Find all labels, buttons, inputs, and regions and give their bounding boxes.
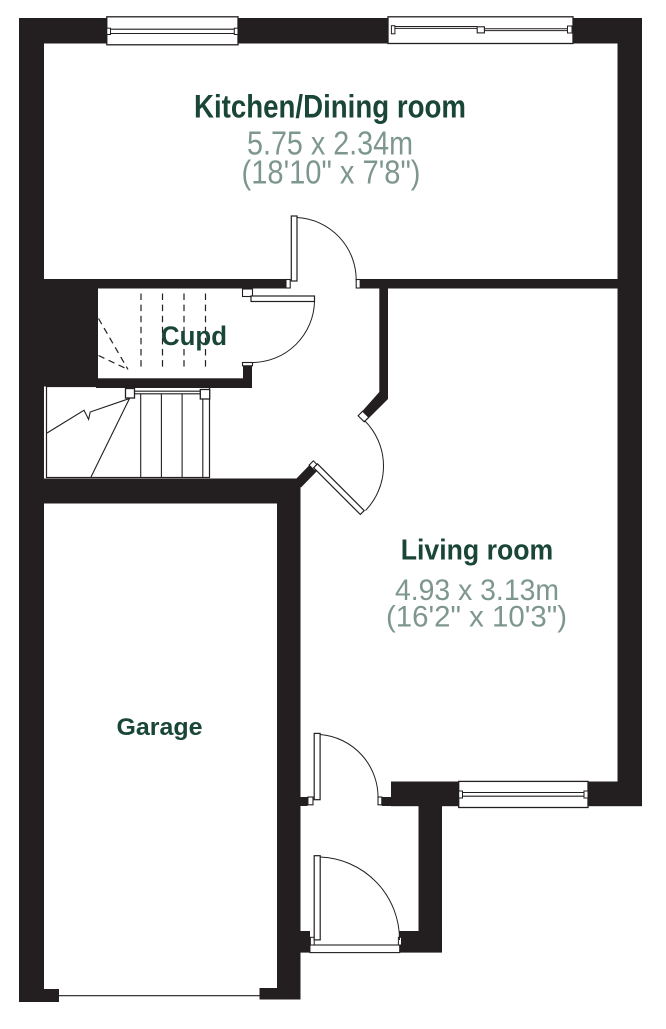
svg-text:Kitchen/Dining room: Kitchen/Dining room [194, 89, 466, 125]
svg-text:(16'2" x 10'3"): (16'2" x 10'3") [386, 601, 567, 634]
svg-text:Living room: Living room [401, 535, 554, 567]
svg-text:Cupd: Cupd [161, 321, 227, 351]
svg-text:(18'10" x 7'8"): (18'10" x 7'8") [242, 154, 421, 191]
svg-text:Garage: Garage [117, 714, 203, 741]
